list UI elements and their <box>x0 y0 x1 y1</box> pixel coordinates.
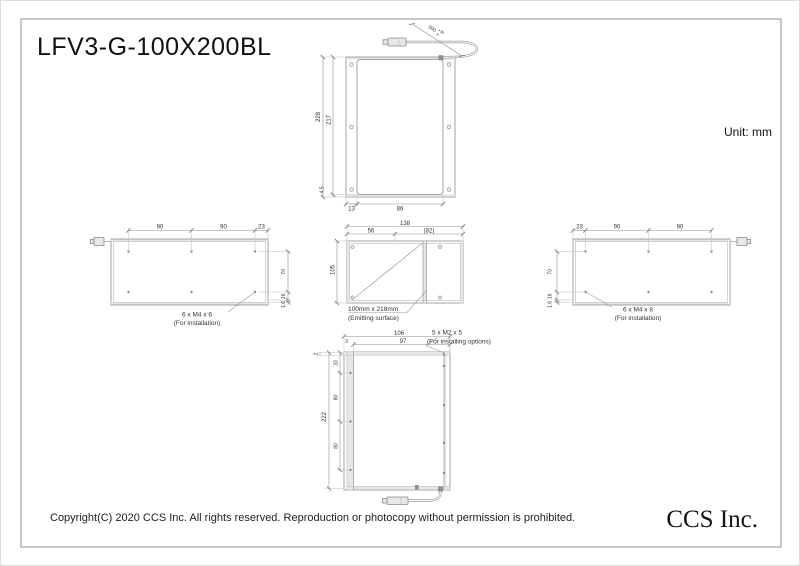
connector-tip <box>383 40 388 44</box>
image-edge <box>1 1 800 566</box>
dim-width-right: (82) <box>424 228 435 234</box>
front-view-cable-dimension: 300 +30 0 <box>412 23 462 56</box>
tap-hole <box>190 291 192 293</box>
connector-tip <box>383 499 388 504</box>
dim-height-outer: 228 <box>316 111 322 122</box>
dim-height-inner: 217 <box>327 114 333 125</box>
left-view-body <box>111 239 268 305</box>
note-screws: 6 x M4 x 6 <box>182 312 212 319</box>
corner-hole <box>439 296 442 299</box>
emitting-surface-diagonal <box>352 244 422 301</box>
copyright-text: Copyright(C) 2020 CCS Inc. All rights re… <box>50 512 575 524</box>
mount-hole <box>447 63 451 67</box>
mount-hole <box>350 125 354 129</box>
left-view-connector <box>91 238 112 246</box>
front-view: 300 +30 0 228 217 4.5 13 86 <box>316 23 477 213</box>
option-hole <box>443 365 445 367</box>
cable <box>406 42 477 57</box>
mount-hole <box>447 125 451 129</box>
note-option-screws: 5 x M2 x 5 <box>432 330 462 337</box>
company-logo: CCS Inc. <box>666 506 758 533</box>
note-emitting-size: 100mm x 218mm <box>348 306 398 313</box>
dim-offset-corner: 2 <box>314 352 320 355</box>
dim-width-total: 138 <box>400 221 411 227</box>
dim-height-total: 222 <box>322 411 328 422</box>
top-view-dimensions: 138 56 (82) 105 <box>331 221 464 303</box>
connector-body <box>387 497 408 505</box>
dim-top-1: 90 <box>157 225 164 231</box>
mount-hole <box>447 188 451 192</box>
technical-drawing-canvas: LFV3-G-100X200BL Unit: mm 300 +30 0 <box>0 0 800 566</box>
right-view-dimensions: 23 90 90 70 16 1.6 <box>548 225 712 308</box>
option-hole <box>443 442 445 444</box>
left-side-view: 90 90 23 70 16 1.6 6 x M4 x 6 (For insta… <box>91 225 292 328</box>
dim-side-2: 16 <box>281 293 287 299</box>
option-hole <box>443 472 445 474</box>
left-view-note: 6 x M4 x 6 (For installation) <box>174 292 255 327</box>
tap-hole <box>710 291 712 293</box>
right-view-connector <box>730 238 751 246</box>
dim-width-left: 13 <box>348 207 355 213</box>
top-view-body <box>347 241 463 303</box>
edge-mark <box>415 485 419 490</box>
left-view-inner <box>114 242 266 303</box>
dim-width-left: 56 <box>368 228 375 234</box>
corner-hole <box>351 296 354 299</box>
dim-width-window: 86 <box>397 207 404 213</box>
cable <box>408 489 441 501</box>
corner-hole <box>439 246 442 249</box>
note-purpose: (For installation) <box>615 315 662 322</box>
dim-pitch-3: 80 <box>334 443 340 449</box>
bottom-view-body <box>344 352 450 490</box>
dim-side-3: 1.6 <box>548 301 554 308</box>
connector-tip <box>747 239 751 243</box>
dim-pitch-1: 33 <box>334 360 340 366</box>
mount-hole <box>350 188 354 192</box>
connector-body <box>737 238 747 246</box>
dim-top-2: 90 <box>614 225 621 231</box>
dim-depth: 105 <box>331 264 337 275</box>
cable-gland <box>438 487 443 492</box>
dim-side-3: 1.6 <box>281 301 287 308</box>
option-hole <box>443 404 445 406</box>
right-side-view: 23 90 90 70 16 1.6 6 x M4 x 8 (For insta… <box>548 225 751 323</box>
tap-hole <box>647 291 649 293</box>
cable-gland <box>439 55 444 60</box>
option-hole <box>349 420 351 422</box>
dim-top-3: 90 <box>677 225 684 231</box>
bottom-view-note: 5 x M2 x 5 (For installing options) <box>426 330 491 354</box>
front-view-body <box>346 57 455 197</box>
bottom-view: 106 97 3 2 222 33 80 80 5 x M2 x 5 (For … <box>314 330 491 505</box>
option-hole <box>443 353 445 355</box>
dim-bottom-margin: 4.5 <box>320 186 326 193</box>
dim-top-3: 23 <box>258 225 265 231</box>
corner-hole <box>351 246 354 249</box>
dim-side-1: 70 <box>281 269 287 275</box>
dim-cable-length: 300 <box>427 24 437 34</box>
top-view: 138 56 (82) 105 100mm x 218mm (Emitting … <box>331 221 464 322</box>
connector-body <box>94 238 104 246</box>
note-option-purpose: (For installing options) <box>427 339 491 346</box>
dim-side-2: 16 <box>548 293 554 299</box>
cable-dim-line <box>412 24 462 56</box>
right-view-inner <box>576 242 728 303</box>
note-purpose: (For installation) <box>174 320 221 327</box>
page-title: LFV3-G-100X200BL <box>37 33 272 61</box>
drawing-page: LFV3-G-100X200BL Unit: mm 300 +30 0 <box>0 0 800 566</box>
note-emitting-label: (Emitting surface) <box>348 315 399 322</box>
left-view-dimensions: 90 90 23 70 16 1.6 <box>129 225 292 308</box>
top-view-inner <box>350 244 461 301</box>
dim-width-inner: 97 <box>400 339 407 345</box>
note-screws: 6 x M4 x 8 <box>623 307 653 314</box>
dim-top-2: 90 <box>220 225 227 231</box>
dim-offset-side: 3 <box>345 339 348 345</box>
dim-cable-tol-minus: 0 <box>436 32 440 37</box>
option-hole <box>349 372 351 374</box>
mount-hole <box>350 63 354 67</box>
option-hole <box>349 469 351 471</box>
connector-tip <box>91 239 95 243</box>
right-view-body <box>573 239 730 305</box>
dim-width-outer: 106 <box>394 331 405 337</box>
front-view-window <box>357 60 443 195</box>
right-view-note: 6 x M4 x 8 (For installation) <box>586 292 662 322</box>
dim-side-1: 70 <box>548 269 554 275</box>
tap-hole <box>127 291 129 293</box>
dim-top-1: 23 <box>576 225 583 231</box>
dim-pitch-2: 80 <box>334 395 340 401</box>
front-view-dimensions: 228 217 4.5 13 86 <box>316 57 443 213</box>
drawing-border <box>21 19 781 547</box>
connector-body <box>388 38 406 46</box>
unit-label: Unit: mm <box>724 125 772 139</box>
top-view-note: 100mm x 218mm (Emitting surface) <box>348 290 427 322</box>
